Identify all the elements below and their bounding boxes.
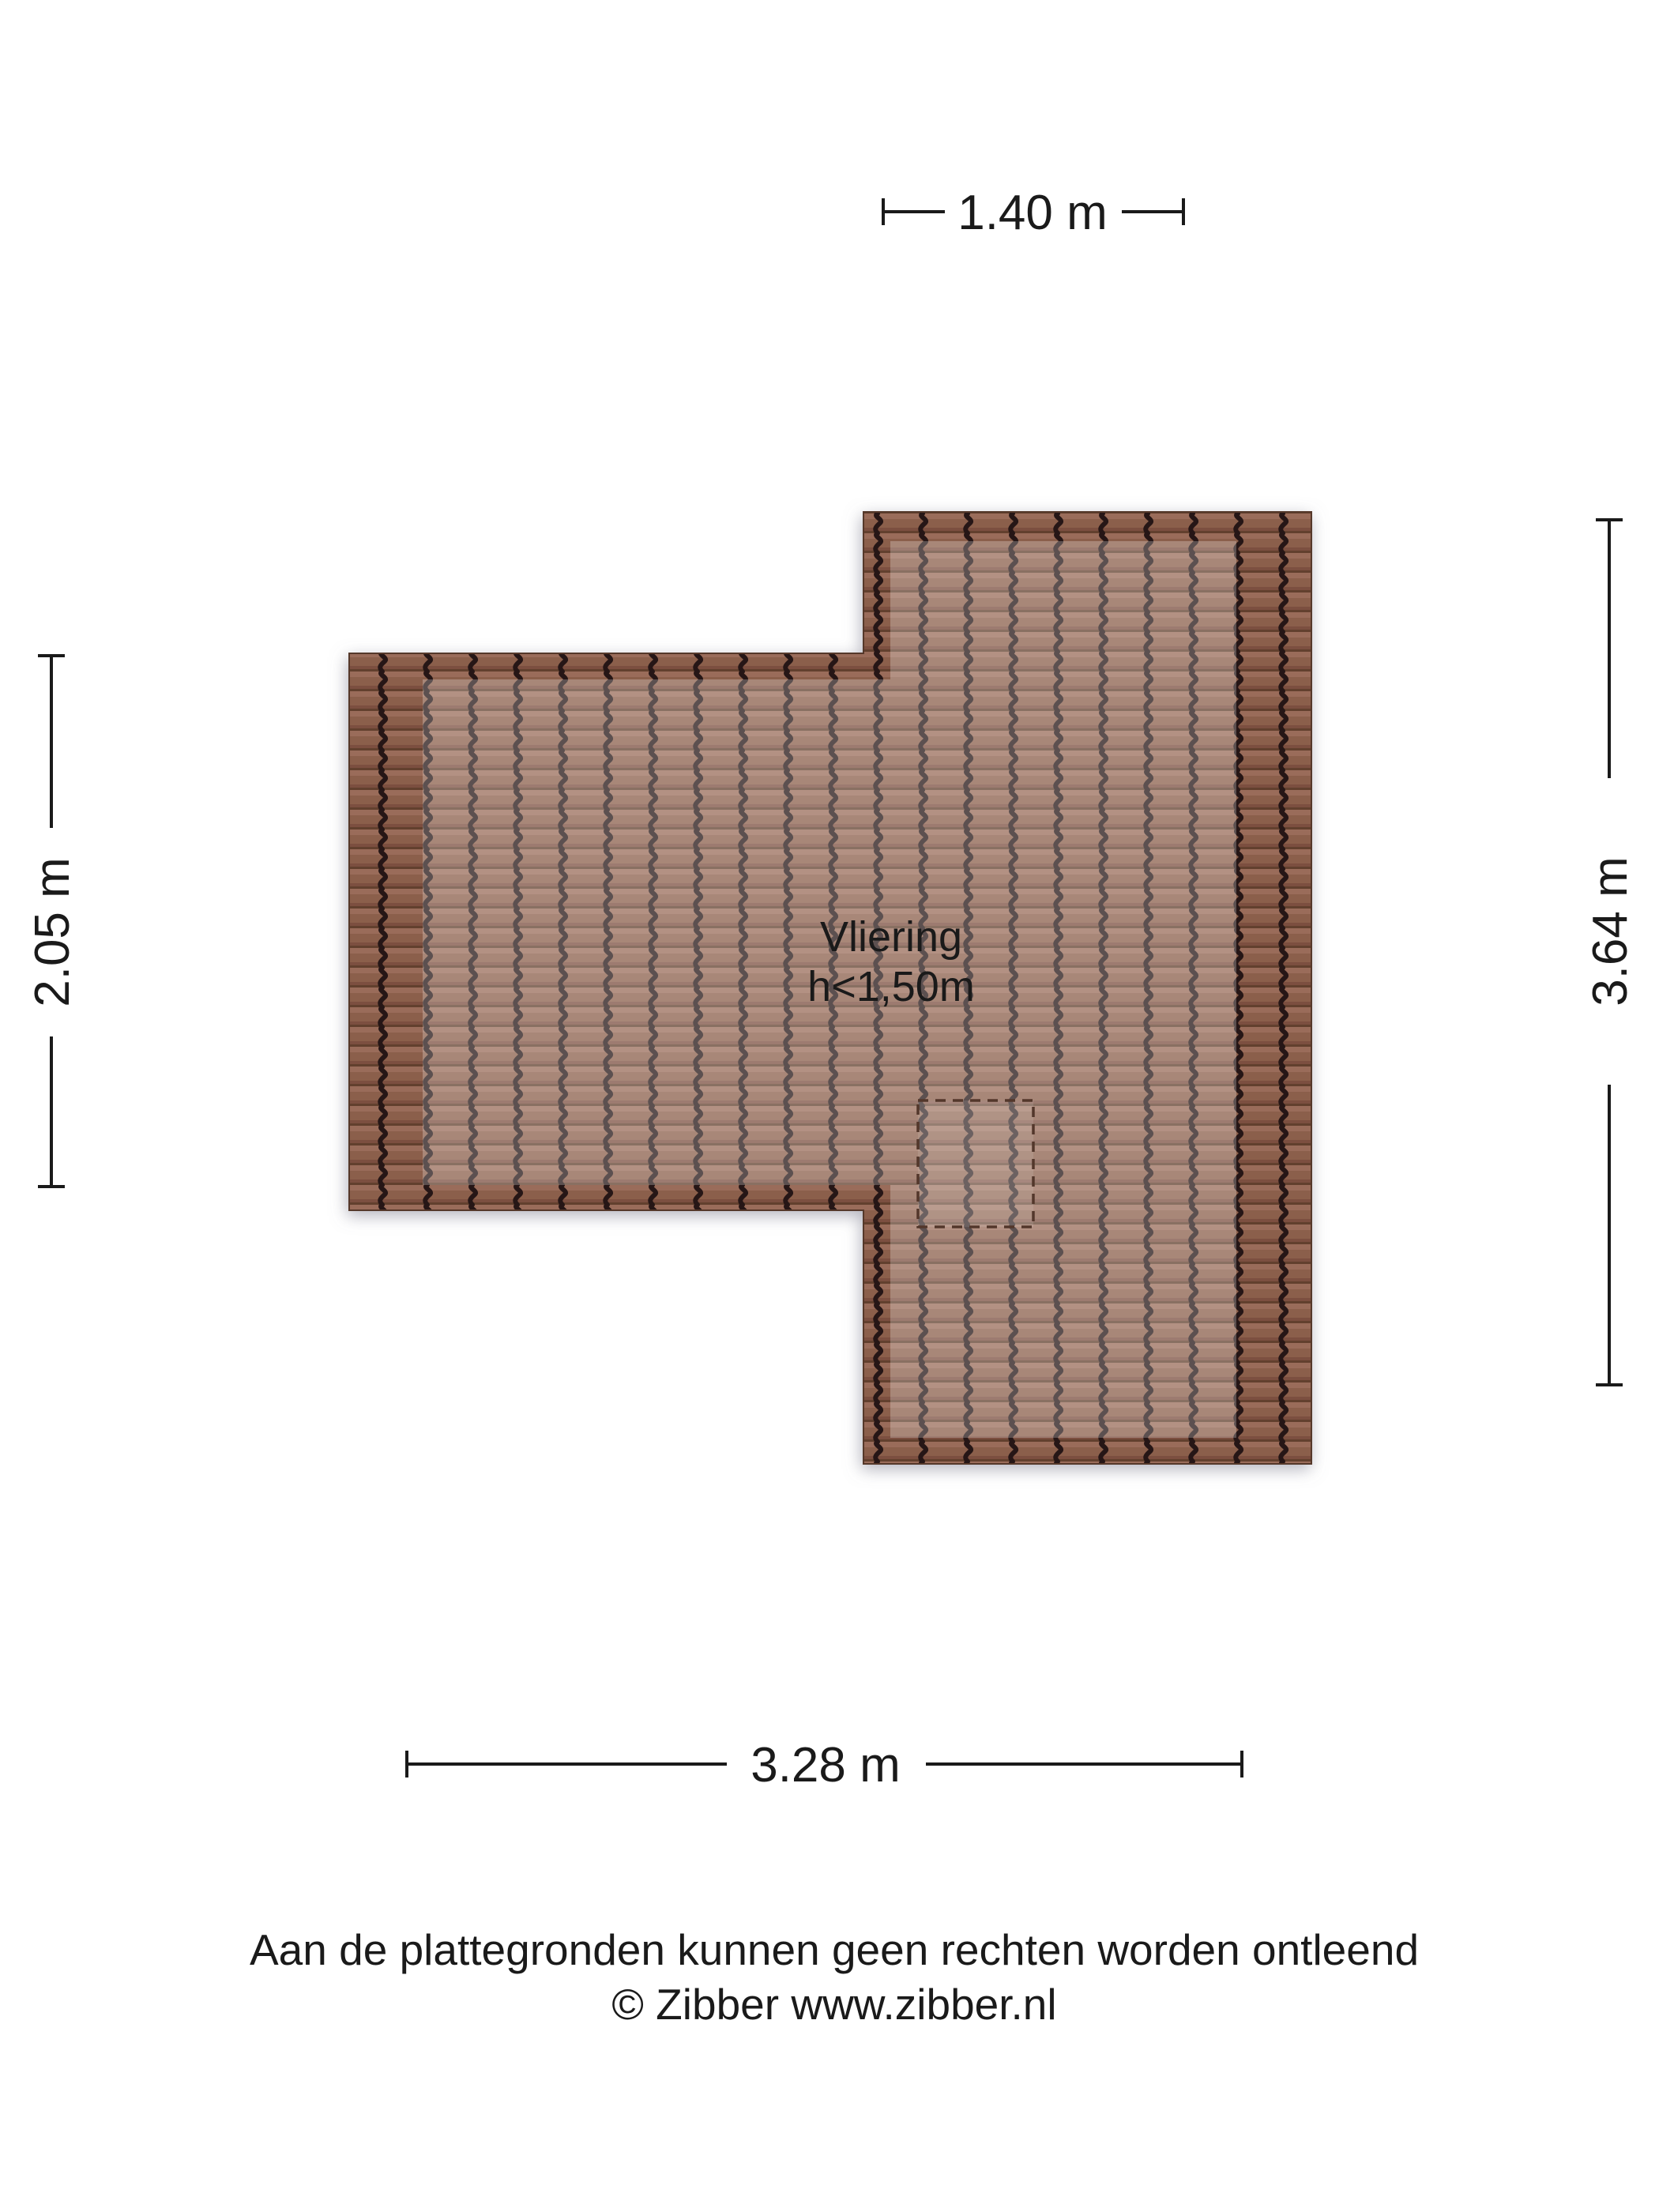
dimension-top-label: 1.40 m bbox=[957, 186, 1108, 240]
floorplan-canvas: Vliering h<1,50m 1.40 m 2.05 m 3.64 m bbox=[0, 0, 1659, 2212]
room-height-label: h<1,50m bbox=[807, 963, 975, 1010]
dimension-left-label: 2.05 m bbox=[25, 857, 80, 1007]
floorplan-page: Vliering h<1,50m 1.40 m 2.05 m 3.64 m bbox=[0, 0, 1659, 2212]
hatch-opening-dashed bbox=[918, 1100, 1033, 1227]
room-name-label: Vliering bbox=[820, 913, 962, 961]
disclaimer-line1: Aan de plattegronden kunnen geen rechten… bbox=[250, 1925, 1419, 1974]
dimension-bottom-label: 3.28 m bbox=[750, 1738, 901, 1793]
disclaimer-line2: © Zibber www.zibber.nl bbox=[611, 1980, 1056, 2029]
dimension-right-label: 3.64 m bbox=[1583, 856, 1638, 1006]
